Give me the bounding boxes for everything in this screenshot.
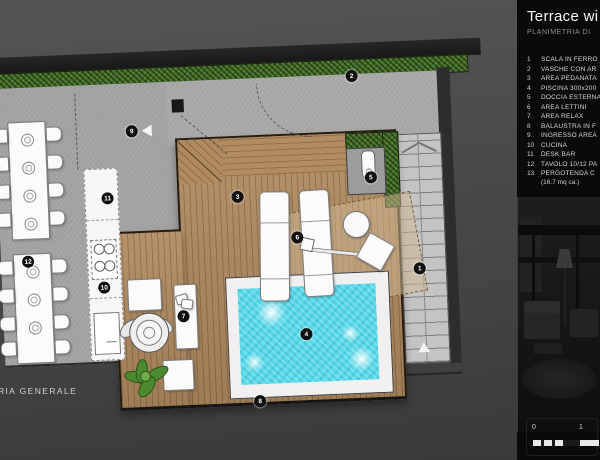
cabinet-door-line xyxy=(107,341,117,342)
chair xyxy=(0,212,12,228)
legend-number: 7 xyxy=(527,113,541,120)
legend-item: 12TAVOLO 10/12 PA xyxy=(527,160,600,170)
legend-number: 9 xyxy=(527,132,541,139)
chair xyxy=(47,154,64,170)
kitchen-divider xyxy=(86,219,118,221)
legend-item: 7AREA RELAX xyxy=(527,112,600,122)
relax-seat xyxy=(127,278,162,311)
legend-number: 2 xyxy=(527,66,541,73)
photo-lamp-shade xyxy=(556,249,573,268)
legend-number: 1 xyxy=(527,56,541,63)
scale-segment xyxy=(533,440,541,446)
chair xyxy=(0,341,17,357)
legend-label: DOCCIA ESTERNA xyxy=(541,94,600,101)
chair xyxy=(45,126,62,142)
legend-note: (16.7 mq ca.) xyxy=(541,179,579,186)
legend-label: DESK BAR xyxy=(541,151,575,158)
legend-label: PERGOTENDA C xyxy=(541,170,595,177)
legend-number: 11 xyxy=(527,151,541,158)
magazine xyxy=(181,298,194,309)
lounger-backrest-line xyxy=(301,220,329,223)
pool-light-spot xyxy=(341,324,360,343)
legend-list: 1SCALA IN FERRO 2VASCHE CON AR 3AREA PED… xyxy=(527,55,600,179)
photo-rug xyxy=(522,359,596,399)
legend-label: PISCINA 300x200 xyxy=(541,85,596,92)
photo-coffee-table xyxy=(534,343,562,354)
legend-label: VASCHE CON AR xyxy=(541,66,597,73)
legend-item: 4PISCINA 300x200 xyxy=(527,84,600,94)
scale-segment xyxy=(563,440,580,446)
chair xyxy=(53,314,70,330)
legend-item: 3AREA PEDANATA xyxy=(527,74,600,84)
legend-label: CUCINA xyxy=(541,142,567,149)
kitchen-cabinet xyxy=(93,312,121,355)
pool-light-spot xyxy=(348,345,375,372)
chair xyxy=(54,339,71,355)
plan-caption: RIA GENERALE xyxy=(0,386,77,396)
chair xyxy=(0,128,8,144)
lounger-foot-line xyxy=(304,274,332,277)
scale-segment xyxy=(580,440,599,446)
chair xyxy=(0,156,9,172)
scale-tick-0: 0 xyxy=(532,424,536,431)
info-panel: Terrace wi PLANIMETRIA DI 1SCALA IN FERR… xyxy=(517,0,600,460)
chair xyxy=(0,260,14,276)
legend-item: 13PERGOTENDA C xyxy=(527,169,600,179)
sun-lounger xyxy=(259,191,290,301)
stove-burner xyxy=(103,243,114,254)
chair xyxy=(51,258,68,274)
panel-subtitle: PLANIMETRIA DI xyxy=(527,29,600,36)
deck-plant xyxy=(121,354,171,400)
legend-item: 10CUCINA xyxy=(527,141,600,151)
legend-number: 10 xyxy=(527,142,541,149)
legend-label: AREA LETTINI xyxy=(541,104,587,111)
scale-segment xyxy=(555,440,563,446)
rotated-plan: 1 2 3 4 5 6 7 8 9 10 11 12 xyxy=(0,0,517,460)
chair xyxy=(0,316,16,332)
photo-post xyxy=(576,235,579,320)
plan-canvas: 1 2 3 4 5 6 7 8 9 10 11 12 RIA GENERALE xyxy=(0,0,517,460)
legend-item: 2VASCHE CON AR xyxy=(527,65,600,75)
legend-label: AREA RELAX xyxy=(541,113,583,120)
chair xyxy=(49,210,66,226)
render-photo xyxy=(517,197,600,432)
legend-item: 9INGRESSO AREA xyxy=(527,131,600,141)
scale-segment xyxy=(544,440,552,446)
stove xyxy=(90,239,118,280)
legend-number: 3 xyxy=(527,75,541,82)
entry-arrow-icon xyxy=(141,124,151,136)
pool-light-spot xyxy=(256,297,287,328)
legend-label: SCALA IN FERRO xyxy=(541,56,598,63)
legend-number: 13 xyxy=(527,170,541,177)
pool-light-spot xyxy=(244,352,265,373)
stair-direction-line-right xyxy=(418,142,437,152)
chair xyxy=(52,286,69,302)
legend-label: BALAUSTRA IN F xyxy=(541,123,596,130)
legend-number: 5 xyxy=(527,94,541,101)
legend-item: 8BALAUSTRA IN F xyxy=(527,122,600,132)
legend-item: 6AREA LETTINI xyxy=(527,103,600,113)
stair-arrow-icon xyxy=(418,342,430,352)
chair xyxy=(0,184,11,200)
scale-box xyxy=(526,418,598,456)
stair-base-line xyxy=(406,372,462,376)
legend-number: 8 xyxy=(527,123,541,130)
scale-bar xyxy=(533,440,599,446)
legend-label: INGRESSO AREA xyxy=(541,132,597,139)
stove-burner xyxy=(104,260,115,271)
photo-sofa xyxy=(570,309,598,337)
lounger-foot-line xyxy=(261,278,289,279)
chair xyxy=(48,182,65,198)
legend-number: 6 xyxy=(527,104,541,111)
legend-item: 5DOCCIA ESTERNA xyxy=(527,93,600,103)
legend-label: TAVOLO 10/12 PA xyxy=(541,161,597,168)
legend-label: AREA PEDANATA xyxy=(541,75,597,82)
lounger-backrest-line xyxy=(261,222,289,223)
legend-item: 1SCALA IN FERRO xyxy=(527,55,600,65)
scale-tick-1: 1 xyxy=(579,424,583,431)
legend-number: 4 xyxy=(527,85,541,92)
kitchen-divider xyxy=(90,297,122,299)
legend-item: 11DESK BAR xyxy=(527,150,600,160)
photo-sofa xyxy=(524,313,560,339)
deck-pillar xyxy=(171,99,184,112)
legend-number: 12 xyxy=(527,161,541,168)
photo-pergola-beam xyxy=(518,225,600,235)
marker-8: 8 xyxy=(254,395,266,407)
photo-lamp-stem xyxy=(564,268,566,326)
panel-title: Terrace wi xyxy=(527,8,600,25)
chair xyxy=(0,288,15,304)
